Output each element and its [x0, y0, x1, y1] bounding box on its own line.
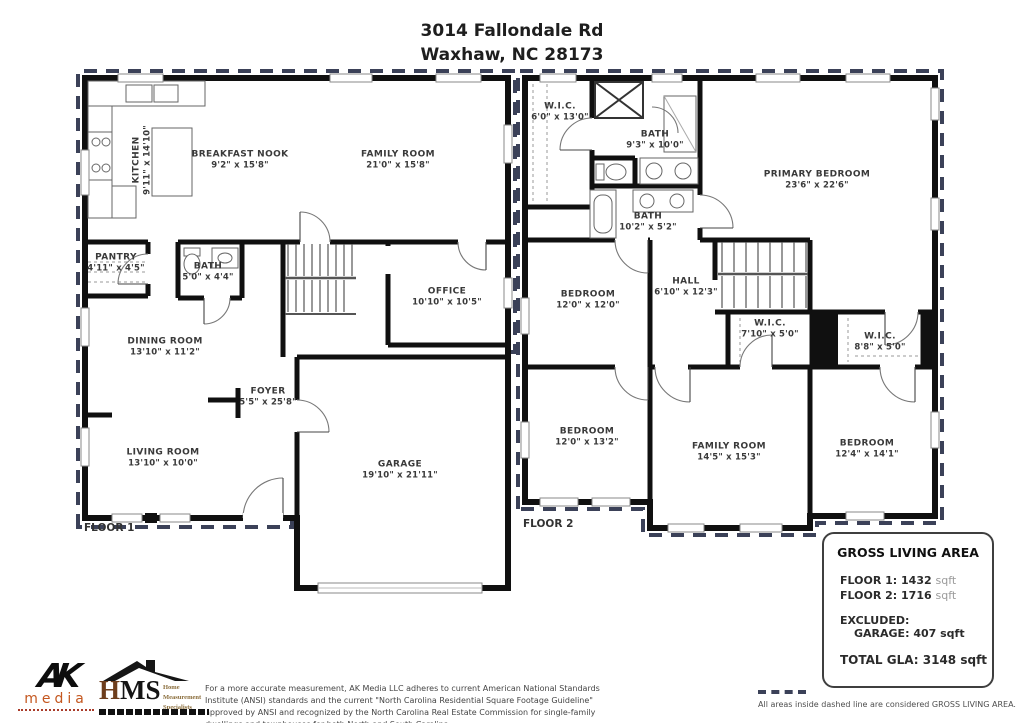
floor1-tag: FLOOR 1 [84, 522, 134, 534]
room-dims: 12'0" x 13'2" [555, 438, 619, 448]
gla-floor2-row: FLOOR 2: 1716 sqft [840, 589, 992, 604]
gla-total-value: 3148 [923, 653, 956, 667]
room-name: PANTRY [87, 253, 144, 263]
room-name: BEDROOM [555, 427, 619, 437]
room-label-wic-2: W.I.C. 8'8" x 5'0" [854, 332, 905, 353]
floor2-tag: FLOOR 2 [523, 518, 573, 530]
ak-media-logo-underline [18, 709, 94, 711]
room-label-bedroom-2: BEDROOM 12'0" x 13'2" [555, 427, 619, 448]
room-label-foyer: FOYER 5'5" x 25'8" [239, 387, 296, 408]
room-dims: 13'10" x 11'2" [127, 348, 202, 358]
room-dims: 8'8" x 5'0" [854, 343, 905, 353]
room-name: BATH [182, 262, 233, 272]
room-name: HALL [654, 277, 718, 287]
room-dims: 12'4" x 14'1" [835, 450, 899, 460]
room-dims: 10'2" x 5'2" [619, 223, 676, 233]
room-label-bath-3: BATH 10'2" x 5'2" [619, 212, 676, 233]
room-dims: 6'10" x 12'3" [654, 288, 718, 298]
gla-floor1-label: FLOOR 1: [840, 574, 897, 587]
room-dims: 12'0" x 12'0" [556, 301, 620, 311]
room-label-kitchen: KITCHEN 9'11" x 14'10" [132, 125, 153, 195]
gla-title: GROSS LIVING AREA [824, 545, 992, 560]
room-dims: 9'2" x 15'8" [191, 161, 288, 171]
room-label-living-room: LIVING ROOM 13'10" x 10'0" [126, 448, 199, 469]
room-label-family-room-1: FAMILY ROOM 21'0" x 15'8" [361, 150, 435, 171]
address-line2: Waxhaw, NC 28173 [0, 44, 1024, 68]
hms-logo: HMS Home Measurement Specialists [99, 659, 211, 717]
room-label-hall: HALL 6'10" x 12'3" [654, 277, 718, 298]
gla-total-label: TOTAL GLA: [840, 653, 919, 667]
room-dims: 6'0" x 13'0" [531, 113, 588, 123]
room-dims: 19'10" x 21'11" [362, 471, 438, 481]
gla-garage-unit: sqft [940, 627, 964, 640]
room-dims: 23'6" x 22'6" [764, 181, 871, 191]
hms-logo-letters: HMS [99, 677, 161, 704]
room-name: W.I.C. [854, 332, 905, 342]
floorplan-page: 3014 Fallondale Rd Waxhaw, NC 28173 [0, 0, 1024, 723]
address-line1: 3014 Fallondale Rd [0, 20, 1024, 44]
room-label-breakfast-nook: BREAKFAST NOOK 9'2" x 15'8" [191, 150, 288, 171]
room-label-dining-room: DINING ROOM 13'10" x 11'2" [127, 337, 202, 358]
gla-floor2-unit: sqft [936, 589, 957, 602]
room-dims: 21'0" x 15'8" [361, 161, 435, 171]
gla-total-row: TOTAL GLA: 3148 sqft [840, 653, 992, 667]
gla-floor1-unit: sqft [936, 574, 957, 587]
hms-tagline-line2: Measurement [163, 693, 211, 703]
gla-garage-row: GARAGE: 407 sqft [854, 627, 992, 640]
room-name: BEDROOM [556, 290, 620, 300]
room-name: FAMILY ROOM [692, 442, 766, 452]
room-label-garage: GARAGE 19'10" x 21'11" [362, 460, 438, 481]
room-name: W.I.C. [741, 319, 798, 329]
room-label-wic-1: W.I.C. 7'10" x 5'0" [741, 319, 798, 340]
room-name: KITCHEN [132, 125, 142, 195]
room-name: DINING ROOM [127, 337, 202, 347]
room-name: BATH [626, 130, 683, 140]
room-dims: 13'10" x 10'0" [126, 459, 199, 469]
room-name: BATH [619, 212, 676, 222]
room-label-bath-1: BATH 5'0" x 4'4" [182, 262, 233, 283]
room-name: FAMILY ROOM [361, 150, 435, 160]
gla-garage-value: 407 [913, 627, 936, 640]
page-title: 3014 Fallondale Rd Waxhaw, NC 28173 [0, 20, 1024, 68]
room-label-bath-2: BATH 9'3" x 10'0" [626, 130, 683, 151]
room-label-primary-bedroom: PRIMARY BEDROOM 23'6" x 22'6" [764, 170, 871, 191]
room-dims: 10'10" x 10'5" [412, 298, 482, 308]
room-name: OFFICE [412, 287, 482, 297]
hms-letters-ms: MS [120, 675, 161, 705]
gla-total-unit: sqft [960, 653, 987, 667]
hms-ruler-bar [99, 709, 209, 715]
gross-living-area-box: GROSS LIVING AREA FLOOR 1: 1432 sqft FLO… [822, 532, 994, 688]
gla-floor1-row: FLOOR 1: 1432 sqft [840, 574, 992, 589]
measurement-disclaimer: For a more accurate measurement, AK Medi… [205, 683, 619, 723]
room-name: BEDROOM [835, 439, 899, 449]
gla-excluded-label: EXCLUDED: [840, 614, 992, 627]
room-dims: 9'3" x 10'0" [626, 141, 683, 151]
room-label-wic-primary: W.I.C. 6'0" x 13'0" [531, 102, 588, 123]
hms-letter-h: H [99, 675, 120, 705]
room-name: FOYER [239, 387, 296, 397]
gla-floor2-label: FLOOR 2: [840, 589, 897, 602]
room-label-office: OFFICE 10'10" x 10'5" [412, 287, 482, 308]
room-name: W.I.C. [531, 102, 588, 112]
hms-tagline-line1: Home [163, 683, 211, 693]
room-dims: 14'5" x 15'3" [692, 453, 766, 463]
room-label-pantry: PANTRY 4'11" x 4'5" [87, 253, 144, 274]
room-name: PRIMARY BEDROOM [764, 170, 871, 180]
gla-floor2-value: 1716 [901, 589, 932, 602]
ak-media-logo-mark: AK [12, 661, 100, 691]
dashed-line-legend-text: All areas inside dashed line are conside… [758, 700, 1016, 709]
room-dims: 4'11" x 4'5" [87, 264, 144, 274]
gla-garage-label: GARAGE: [854, 627, 909, 640]
room-name: GARAGE [362, 460, 438, 470]
room-label-bedroom-3: BEDROOM 12'4" x 14'1" [835, 439, 899, 460]
room-dims: 5'0" x 4'4" [182, 273, 233, 283]
room-label-bedroom-1: BEDROOM 12'0" x 12'0" [556, 290, 620, 311]
room-dims: 9'11" x 14'10" [143, 125, 153, 195]
room-label-family-room-2: FAMILY ROOM 14'5" x 15'3" [692, 442, 766, 463]
gla-floor1-value: 1432 [901, 574, 932, 587]
room-name: BREAKFAST NOOK [191, 150, 288, 160]
room-name: LIVING ROOM [126, 448, 199, 458]
room-dims: 7'10" x 5'0" [741, 330, 798, 340]
dashed-line-legend-swatch [758, 690, 806, 694]
room-dims: 5'5" x 25'8" [239, 398, 296, 408]
ak-media-logo: AK media [14, 661, 98, 711]
